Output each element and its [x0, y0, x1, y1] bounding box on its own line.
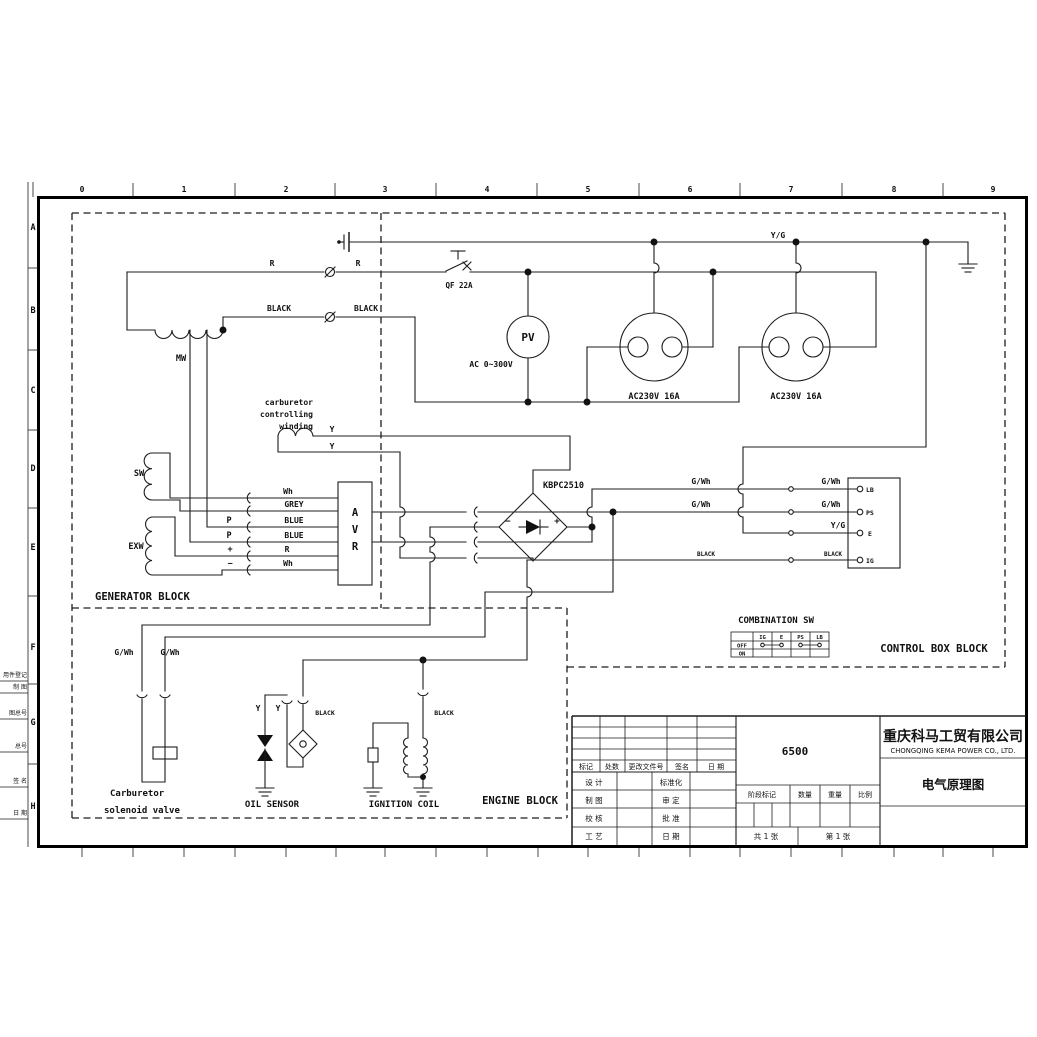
ruler-1: 1 [182, 185, 187, 194]
generator-windings: MW SW EXW Wh GREY BLUE BLUE R Wh P P + − [128, 327, 372, 586]
row-letters: A B C D E F G H [28, 223, 38, 812]
solenoid-label-1: Carburetor [110, 789, 165, 799]
wire-label-y-3: Y [256, 704, 261, 713]
tb-rev-h3: 更改文件号 [629, 762, 664, 771]
margin-label-3: 图总号 [9, 709, 27, 717]
carb-winding-label-3: winding [279, 421, 313, 431]
rectifier-label: KBPC2510 [543, 481, 584, 491]
tb-date: 日 期 [662, 832, 679, 841]
row-c: C [30, 386, 35, 396]
bridge-rectifier-icon: − + [499, 493, 567, 561]
socket-2-label: AC230V 16A [770, 392, 821, 402]
wire-label-gwh-ps2: G/Wh [821, 500, 840, 509]
margin-labels: 用件登记 制 图 图总号 总号 签 名 日 期 [0, 671, 28, 819]
tb-rev-h1: 标记 [579, 762, 593, 771]
margin-label-6: 日 期 [13, 809, 27, 817]
terminal-e: E [868, 530, 872, 538]
combination-sw-table: IG E PS LB OFF ON [731, 632, 829, 658]
polarity-p-1: P [226, 516, 231, 526]
wire-label-wh-1: Wh [283, 487, 293, 496]
ruler-5: 5 [586, 185, 591, 194]
wire-label-black-ig2: BLACK [824, 551, 842, 558]
tb-weight: 重量 [828, 791, 842, 799]
row-a: A [30, 223, 35, 233]
wire-label-gwh-ps1: G/Wh [691, 500, 710, 509]
ruler-9: 9 [991, 185, 996, 194]
row-b: B [30, 306, 35, 316]
ruler-ticks-bottom [82, 848, 993, 857]
schematic-page: 0 1 2 3 4 5 6 7 8 9 A B C [0, 0, 1037, 1037]
ruler-6: 6 [688, 185, 693, 194]
tb-approve: 批 准 [662, 813, 680, 823]
generator-block-label: GENERATOR BLOCK [95, 591, 191, 603]
socket-1-icon [620, 313, 688, 381]
breaker-label: QF 22A [445, 281, 473, 290]
row-h: H [30, 802, 35, 812]
tb-rev-h2: 处数 [605, 762, 619, 771]
tb-qty: 数量 [798, 790, 812, 799]
terminal-connector-icons [789, 487, 794, 563]
row-e: E [30, 543, 35, 553]
tb-standard: 标准化 [660, 777, 683, 787]
tb-stage: 阶段标记 [748, 790, 776, 799]
ruler-4: 4 [485, 185, 490, 194]
voltmeter-label: PV [521, 331, 535, 344]
wire-label-yg: Y/G [771, 231, 786, 240]
polarity-plus: + [227, 545, 232, 555]
circuit-breaker-icon [446, 251, 471, 271]
wire-label-black-oil: BLACK [315, 709, 335, 717]
avr-connector-icons [247, 493, 250, 575]
avr-letter-v: V [352, 524, 359, 536]
sheet-frame: 0 1 2 3 4 5 6 7 8 9 A B C [0, 182, 1027, 857]
ruler-numbers: 0 1 2 3 4 5 6 7 8 9 [80, 185, 996, 194]
polarity-minus: − [227, 559, 232, 569]
excitation-winding-icon [146, 517, 152, 575]
wire-label-blue-1: BLUE [284, 516, 303, 525]
chassis-tap-icon [337, 232, 349, 252]
company-name-en: CHONGQING KEMA POWER CO., LTD. [891, 747, 1016, 755]
carb-winding-label-1: carburetor [265, 398, 313, 407]
wire-label-y-2: Y [330, 442, 335, 451]
ac-output-circuit: Y/G R R QF 22A BLACK BLACK [127, 231, 977, 406]
comb-row-off: OFF [737, 644, 747, 650]
row-f: F [30, 643, 35, 653]
wire-label-r-3: R [285, 545, 290, 554]
wire-label-y-4: Y [276, 704, 281, 713]
margin-label-1: 用件登记 [3, 671, 27, 679]
socket-1-label: AC230V 16A [628, 392, 679, 402]
socket-2-icon [762, 313, 830, 381]
avr-letter-r: R [352, 541, 359, 553]
sub-winding-icon [144, 453, 152, 500]
margin-label-2: 制 图 [13, 683, 27, 691]
wire-connector-icons [137, 695, 170, 698]
ruler-3: 3 [383, 185, 388, 194]
wire-label-r-1: R [270, 259, 275, 268]
tb-check: 校 核 [585, 813, 603, 823]
ignition-coil-icon [364, 660, 432, 796]
wire-label-yg-e: Y/G [831, 521, 846, 530]
drawing-title: 电气原理图 [922, 777, 985, 792]
tb-design: 设 计 [585, 777, 603, 787]
oil-sensor-label: OIL SENSOR [245, 800, 300, 810]
wire-label-blue-2: BLUE [284, 531, 303, 540]
margin-label-4: 总号 [15, 742, 27, 750]
main-winding-icon [155, 330, 223, 339]
tb-review: 审 定 [662, 795, 680, 805]
wire-label-r-2: R [356, 259, 361, 268]
company-name-cn: 重庆科马工贸有限公司 [883, 728, 1023, 745]
sub-winding-label: SW [134, 469, 145, 479]
wire-label-black-1: BLACK [267, 304, 291, 313]
tb-rev-h4: 签名 [675, 762, 689, 771]
terminal-ig: IG [866, 557, 874, 565]
terminal-lb: LB [866, 486, 874, 494]
wire-label-grey: GREY [284, 500, 303, 509]
row-g: G [30, 718, 35, 728]
tb-scale: 比例 [858, 790, 872, 799]
voltmeter-range-label: AC 0~300V [469, 360, 513, 369]
tb-process: 工 艺 [585, 832, 602, 841]
terminal-block [848, 478, 900, 568]
comb-header-ps: PS [797, 635, 804, 641]
ground-icon [959, 264, 977, 272]
rectifier-minus: − [505, 517, 511, 527]
tb-rev-h5: 日 期 [708, 763, 724, 771]
margin-label-5: 签 名 [13, 777, 27, 785]
combination-sw-label: COMBINATION SW [738, 616, 814, 626]
terminal-ps: PS [866, 509, 874, 517]
oil-sensor-icon [256, 660, 317, 796]
comb-header-lb: LB [816, 635, 823, 641]
carb-winding-label-2: controlling [260, 409, 313, 419]
wire-label-gwh-eng1: G/Wh [114, 648, 133, 657]
comb-row-on: ON [739, 652, 746, 658]
wire-label-gwh-eng2: G/Wh [160, 648, 179, 657]
comb-header-ig: IG [759, 635, 766, 641]
wire-label-black-ig1: BLACK [697, 551, 715, 558]
wire-label-black-2: BLACK [354, 304, 378, 313]
wire-label-gwh-lb1: G/Wh [691, 477, 710, 486]
tb-draw: 制 图 [585, 795, 602, 805]
solenoid-label-2: solenoid valve [104, 805, 180, 816]
rectifier-circuit: − + KBPC2510 [165, 436, 789, 637]
tb-model: 6500 [782, 745, 809, 758]
comb-header-e: E [780, 635, 783, 641]
engine-block-label: ENGINE BLOCK [482, 795, 559, 807]
control-box: G/Wh G/Wh G/Wh G/Wh Y/G BLACK BLACK LB P… [527, 242, 926, 658]
wire-label-wh-2: Wh [283, 559, 293, 568]
schematic-drawing: 0 1 2 3 4 5 6 7 8 9 A B C [0, 0, 1037, 1037]
inline-connector-icon [325, 312, 335, 322]
rectifier-plus: + [554, 517, 560, 527]
tb-sheets-total: 共 1 张 [754, 832, 779, 841]
rectifier-connector-icons [474, 507, 477, 563]
wire-label-y-1: Y [330, 425, 335, 434]
ruler-8: 8 [892, 185, 897, 194]
polarity-p-2: P [226, 531, 231, 541]
avr-letter-a: A [352, 507, 359, 519]
tb-sheet-no: 第 1 张 [826, 831, 851, 841]
wire-label-black-ign: BLACK [434, 709, 454, 717]
title-block: 标记 处数 更改文件号 签名 日 期 设 计 标准化 制 图 审 定 校 核 批… [572, 716, 1026, 845]
excitation-winding-label: EXW [128, 542, 144, 552]
control-box-block-label: CONTROL BOX BLOCK [880, 643, 988, 655]
ignition-coil-label: IGNITION COIL [369, 800, 440, 810]
wire-label-gwh-lb2: G/Wh [821, 477, 840, 486]
ruler-ticks-top [133, 183, 943, 197]
row-d: D [30, 464, 35, 474]
main-winding-label: MW [176, 354, 187, 364]
inline-connector-icon [325, 267, 335, 277]
ruler-2: 2 [284, 185, 289, 194]
ruler-0: 0 [80, 185, 85, 194]
ruler-7: 7 [789, 185, 794, 194]
